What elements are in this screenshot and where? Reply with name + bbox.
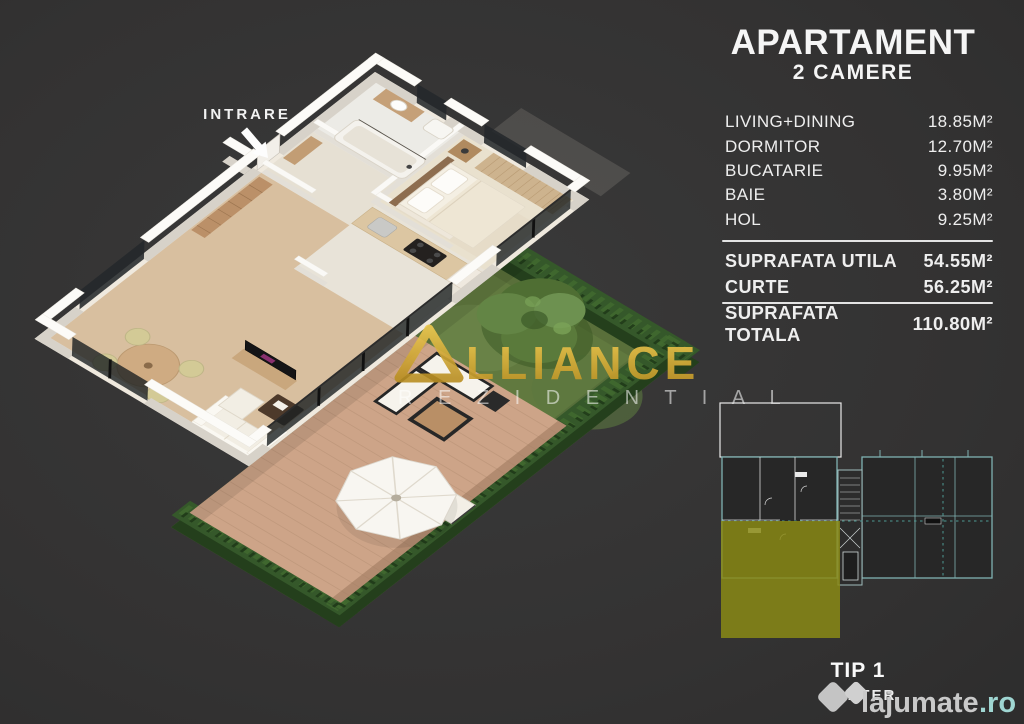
site-watermark-name: lajumate <box>861 687 979 719</box>
room-row-baie: BAIE 3.80M² <box>725 183 993 207</box>
subtotal-label: SUPRAFATA UTILA <box>725 251 897 272</box>
isometric-floorplan <box>0 22 808 636</box>
total-label: SUPRAFATA TOTALA <box>725 302 913 346</box>
listing-image: INTRARE LLIANCE R E Z I D E N T I A L <box>0 0 1024 724</box>
brand-name: LLIANCE <box>466 337 700 389</box>
panel-subtitle: 2 CAMERE <box>712 61 994 85</box>
room-row-hol: HOL 9.25M² <box>725 208 993 232</box>
site-watermark: lajumate .ro <box>816 680 1016 719</box>
spec-panel: APARTAMENT 2 CAMERE LIVING+DINING 18.85M… <box>712 0 994 400</box>
room-area: 18.85M² <box>928 112 993 132</box>
room-label: BUCATARIE <box>725 161 823 181</box>
room-label: LIVING+DINING <box>725 112 855 132</box>
subtotal-label: CURTE <box>725 277 790 298</box>
unit-highlight <box>721 521 840 638</box>
room-row-dormitor: DORMITOR 12.70M² <box>725 134 993 158</box>
room-list: LIVING+DINING 18.85M² DORMITOR 12.70M² B… <box>725 110 993 232</box>
room-area: 3.80M² <box>938 185 993 205</box>
room-label: DORMITOR <box>725 137 820 157</box>
subtotal-area: 54.55M² <box>923 251 993 272</box>
mini-site-plan <box>720 403 992 638</box>
subtotal-row-utila: SUPRAFATA UTILA 54.55M² <box>725 248 993 275</box>
room-label: BAIE <box>725 185 765 205</box>
total-area: 110.80M² <box>913 313 993 335</box>
subtotal-area: 56.25M² <box>923 277 993 298</box>
subtotal-list: SUPRAFATA UTILA 54.55M² CURTE 56.25M² <box>725 248 993 301</box>
unit-type-label: TIP 1 <box>831 659 886 682</box>
room-area: 9.95M² <box>938 161 993 181</box>
site-watermark-tld: .ro <box>979 687 1016 719</box>
panel-title: APARTAMENT <box>712 23 994 63</box>
room-area: 12.70M² <box>928 137 993 157</box>
entrance-label: INTRARE <box>203 106 291 123</box>
subtotal-row-curte: CURTE 56.25M² <box>725 275 993 302</box>
room-label: HOL <box>725 210 761 230</box>
total-row: SUPRAFATA TOTALA 110.80M² <box>725 310 993 337</box>
room-row-bucatarie: BUCATARIE 9.95M² <box>725 159 993 183</box>
room-row-living: LIVING+DINING 18.85M² <box>725 110 993 134</box>
divider <box>722 240 993 242</box>
room-area: 9.25M² <box>938 210 993 230</box>
mini-plan-upper-outline <box>720 403 841 457</box>
